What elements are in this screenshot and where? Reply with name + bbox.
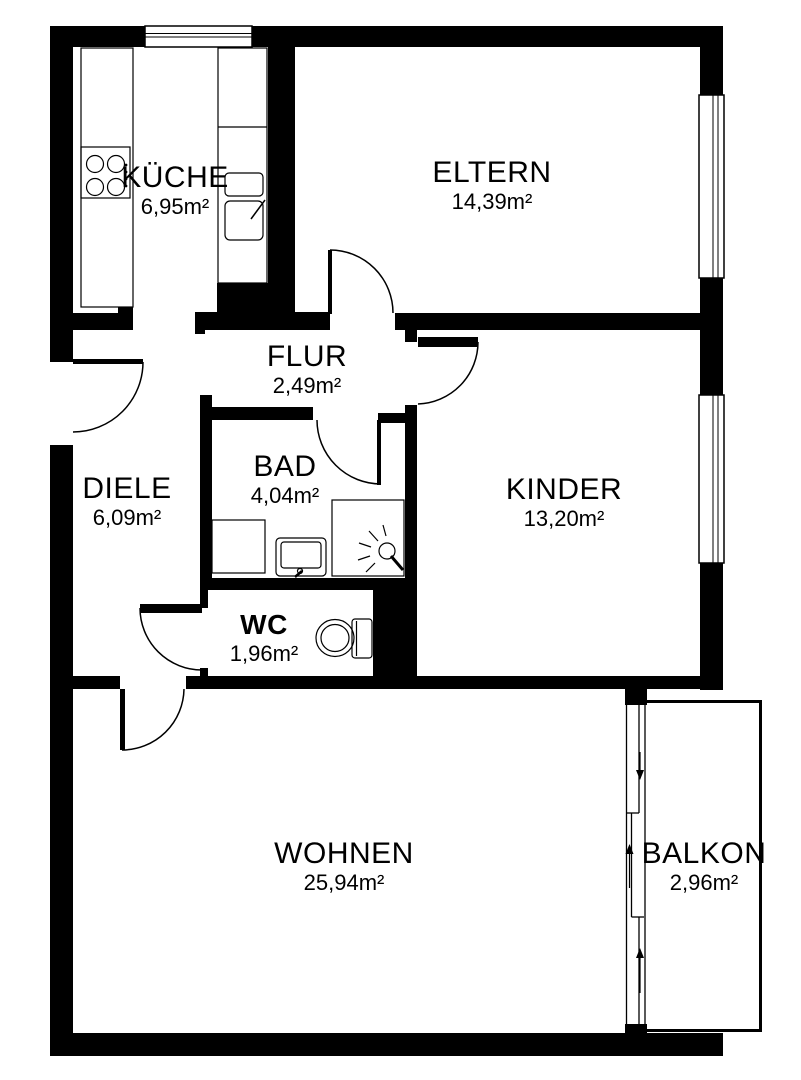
eltern-window-icon	[699, 95, 724, 278]
wall-left-lower	[50, 445, 73, 1056]
bathroom-fixtures	[212, 500, 404, 577]
balcony-door-arrows	[626, 752, 645, 993]
wall-balcony-stub-top	[625, 682, 647, 705]
wall-bottom	[50, 1033, 723, 1056]
balcony	[626, 702, 761, 1031]
washing-machine-icon	[212, 520, 265, 573]
kitchen-window-icon	[145, 26, 252, 47]
floor-plan-drawing	[0, 0, 801, 1080]
kitchen-sink-icon	[225, 173, 265, 240]
arrow-down-icon	[636, 752, 644, 780]
wall-bad-top	[212, 407, 313, 420]
wall-kitchen-counter-tab	[118, 307, 133, 318]
wc-fixtures	[316, 619, 372, 658]
wall-balcony-stub-bottom	[625, 1024, 647, 1034]
wall-flur-top-left	[195, 312, 330, 330]
wall-flur-notch	[195, 312, 205, 334]
floor-plan: KÜCHE 6,95m² ELTERN 14,39m² FLUR 2,49m² …	[0, 0, 801, 1080]
kitchen-fixtures	[81, 48, 267, 307]
wc-door-icon	[140, 604, 202, 670]
entrance-door-icon	[73, 359, 143, 432]
bad-door-icon	[317, 420, 381, 485]
kinder-window-icon	[699, 395, 724, 563]
wall-wc-left-lower	[200, 668, 208, 676]
wall-kinder-left-tab	[405, 325, 417, 342]
wall-left-upper	[50, 26, 73, 362]
wall-bad-left	[200, 395, 212, 590]
bath-sink-icon	[276, 538, 326, 577]
wall-bad-wc	[200, 578, 417, 590]
wall-wc-kinder-block	[373, 590, 417, 676]
shower-icon	[332, 500, 404, 576]
arrow-up-icon	[636, 948, 644, 993]
kitchen-counter-right	[218, 48, 267, 283]
wall-kueche-eltern-divider	[268, 47, 295, 313]
wall-diele-bottom-left	[73, 676, 120, 689]
eltern-door-icon	[328, 250, 393, 314]
kinder-door-icon	[418, 337, 478, 404]
wall-bad-door-strip	[378, 413, 407, 423]
toilet-icon	[316, 619, 372, 658]
wall-top-right	[252, 26, 723, 47]
wall-right-3	[700, 563, 723, 690]
walls	[50, 26, 723, 1056]
wall-right-1	[700, 26, 723, 95]
wohnen-door-icon	[120, 689, 184, 750]
kitchen-counter-left	[81, 48, 133, 307]
balcony-outline	[647, 702, 761, 1031]
wall-flur-top-right	[395, 313, 700, 330]
stove-icon	[81, 147, 130, 198]
wall-right-2	[700, 278, 723, 395]
wall-under-counter-block	[217, 283, 268, 313]
